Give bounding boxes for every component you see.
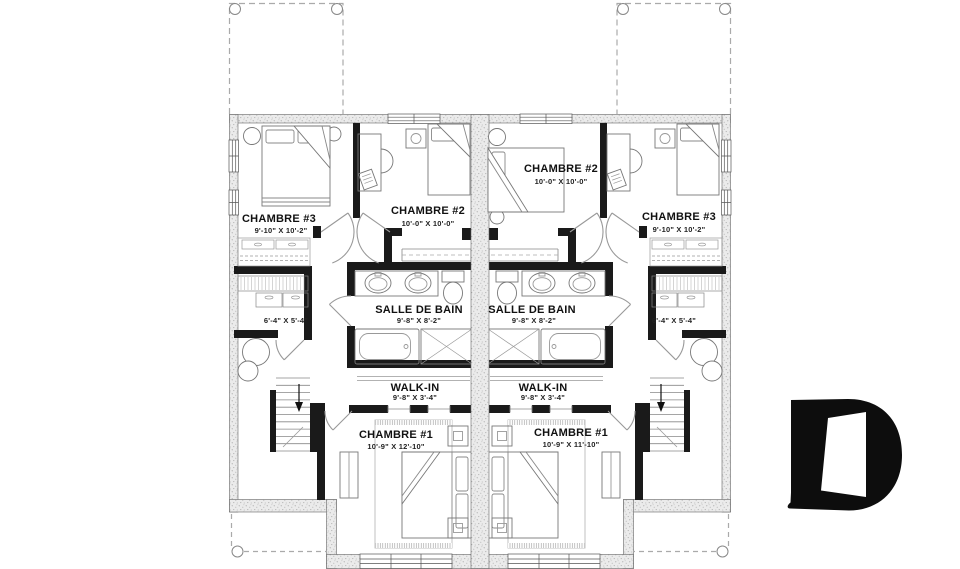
left-unit-geometry (229, 4, 480, 569)
floor-plan-canvas: CHAMBRE #3 9'-10" X 10'-2" CHAMBRE #2 10… (0, 0, 960, 569)
dims-right-salle-de-bain: 9'-8" X 8'-2" (512, 316, 556, 325)
label-left-salle-de-bain: SALLE DE BAIN (375, 304, 463, 316)
label-right-chambre3: CHAMBRE #3 (642, 211, 716, 223)
dims-left-chambre1: 10'-9" X 12'-10" (367, 442, 424, 451)
dims-left-chambre3: 9'-10" X 10'-2" (255, 226, 308, 235)
round-table-icon (489, 129, 506, 146)
dims-left-walk-in: 9'-8" X 3'-4" (393, 393, 437, 402)
label-left-chambre1: CHAMBRE #1 (359, 429, 433, 441)
party-wall (471, 115, 489, 569)
dims-right-chambre3: 9'-10" X 10'-2" (653, 225, 706, 234)
label-right-salle-de-bain: SALLE DE BAIN (488, 304, 576, 316)
round-table-icon (244, 128, 261, 145)
dims-left-chambre2: 10'-0" X 10'-0" (402, 219, 455, 228)
dims-left-rangement: 6'-4" X 5'-4" (264, 316, 308, 325)
left-chambre3-furniture (244, 126, 342, 206)
left-chambre2-furniture (358, 124, 470, 195)
letter-d-door-logo-icon (788, 399, 902, 511)
dims-right-rangement: 6'-4" X 5'-4" (652, 316, 696, 325)
right-unit-geometry (480, 4, 731, 569)
dims-left-salle-de-bain: 9'-8" X 8'-2" (397, 316, 441, 325)
label-right-chambre2: CHAMBRE #2 (524, 163, 598, 175)
label-left-chambre2: CHAMBRE #2 (391, 205, 465, 217)
floor-plan-drawing: CHAMBRE #3 9'-10" X 10'-2" CHAMBRE #2 10… (0, 0, 960, 569)
right-chambre3-furniture (607, 124, 719, 195)
dims-right-walk-in: 9'-8" X 3'-4" (521, 393, 565, 402)
label-right-chambre1: CHAMBRE #1 (534, 427, 608, 439)
dims-right-chambre2: 10'-0" X 10'-0" (535, 177, 588, 186)
dims-right-chambre1: 10'-9" X 11'-10" (543, 440, 600, 449)
label-left-chambre3: CHAMBRE #3 (242, 213, 316, 225)
